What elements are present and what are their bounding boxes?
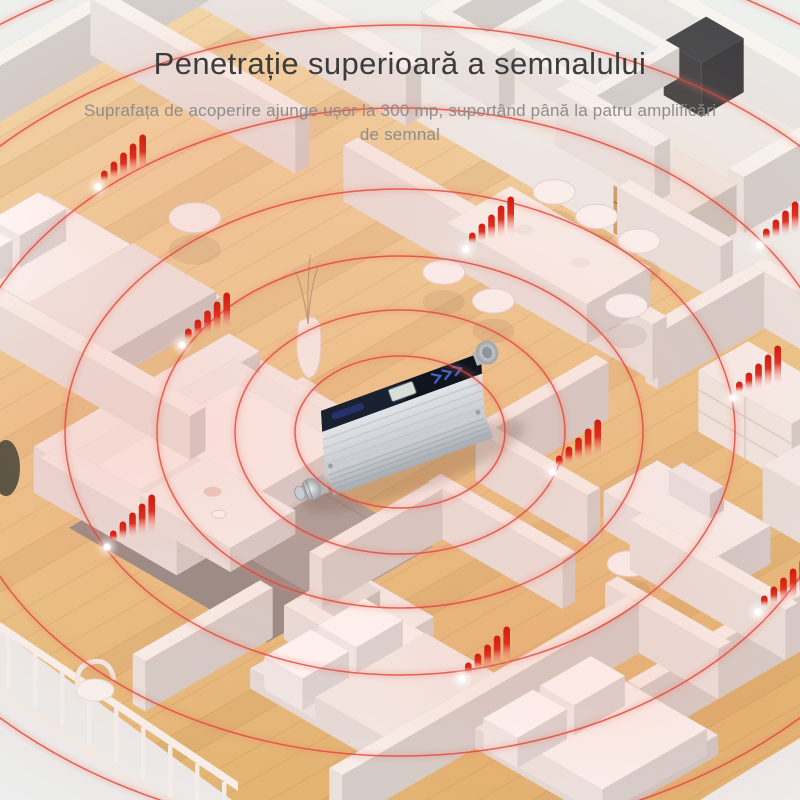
marketing-banner: Penetrație superioară a semnalului Supra… [0,0,800,800]
scene-illustration [0,0,800,800]
apartment-scene [0,0,800,800]
